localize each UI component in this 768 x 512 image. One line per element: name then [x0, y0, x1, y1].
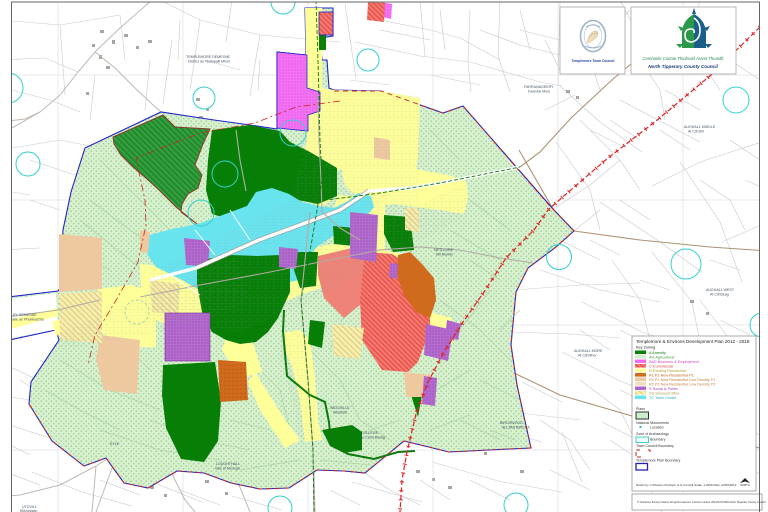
- svg-text:Templemore & Environs Developm: Templemore & Environs Development Plan 2…: [636, 339, 750, 344]
- svg-text:North Tipperary County Council: North Tipperary County Council: [648, 64, 718, 69]
- svg-text:R1 P1 New Residential P1: R1 P1 New Residential P1: [649, 373, 694, 377]
- svg-text:Templemore Plan Boundary: Templemore Plan Boundary: [636, 459, 681, 463]
- svg-text:C Commercial: C Commercial: [649, 364, 673, 368]
- svg-text:A Amenity: A Amenity: [649, 351, 666, 355]
- svg-text:At Cill Mhor: At Cill Mhor: [578, 354, 597, 358]
- svg-text:Kill Munthi: Kill Munthi: [436, 253, 453, 257]
- svg-text:Fawnick More: Fawnick More: [528, 90, 550, 94]
- svg-text:Comhairle Contae Thiobraid Ára: Comhairle Contae Thiobraid Árann Thuaidh: [642, 56, 724, 61]
- svg-text:NETLLORE: NETLLORE: [434, 248, 454, 252]
- svg-text:...RY DEMESNE: ...RY DEMESNE: [10, 313, 37, 317]
- svg-text:FARRANAGEERY: FARRANAGEERY: [524, 85, 554, 89]
- svg-text:Plans: Plans: [636, 407, 645, 411]
- svg-text:TC Town Centre: TC Town Centre: [649, 396, 676, 400]
- svg-text:NORTH: NORTH: [740, 483, 749, 487]
- svg-text:SS Serviced Sites: SS Serviced Sites: [649, 391, 679, 395]
- svg-text:KYLE: KYLE: [110, 442, 120, 446]
- svg-text:National Monuments: National Monuments: [636, 421, 669, 425]
- svg-text:R2 P1 New Residential Low De: R2 P1 New Residential Low Density P1: [649, 378, 715, 382]
- svg-text:R Existing Residential: R Existing Residential: [649, 369, 686, 373]
- svg-text:Vale of Monogh: Vale of Monogh: [215, 467, 240, 471]
- svg-text:Boundary: Boundary: [650, 438, 666, 442]
- svg-text:At Cill still: At Cill still: [688, 130, 704, 134]
- svg-text:Templemore Town Council: Templemore Town Council: [572, 59, 615, 63]
- svg-text:Key Zoning: Key Zoning: [636, 346, 655, 350]
- svg-text:BIRCHWOOD: BIRCHWOOD: [500, 421, 523, 425]
- svg-text:S Social & Public: S Social & Public: [649, 387, 678, 391]
- svg-text:An Choil Bheag: An Choil Bheag: [360, 436, 385, 440]
- svg-text:AUGHALL MIDDLE: AUGHALL MIDDLE: [684, 125, 716, 129]
- svg-text:District an Teampaill Mhoir: District an Teampaill Mhoir: [188, 60, 231, 64]
- svg-text:Baile an Phuilleachta: Baile an Phuilleachta: [10, 318, 44, 322]
- svg-text:Westerfe: Westerfe: [333, 411, 347, 415]
- svg-text:TEMPLEMORE DEMESNE: TEMPLEMORE DEMESNE: [186, 55, 231, 59]
- svg-text:AG Agricultural: AG Agricultural: [649, 355, 674, 359]
- svg-text:B&E Business & Employment: B&E Business & Employment: [649, 360, 700, 364]
- svg-text:LOUGHTHALL: LOUGHTHALL: [216, 462, 240, 466]
- svg-text:© Ordnance Survey Ireland. All: © Ordnance Survey Ireland. All rights re…: [637, 500, 766, 504]
- svg-text:Drawn by: N.Phelan Checked: H: Drawn by: N.Phelan Checked: H.G Consult …: [636, 483, 737, 487]
- svg-text:ALLTAN BIRCHA: ALLTAN BIRCHA: [502, 426, 530, 430]
- svg-text:Zone of Archaeology: Zone of Archaeology: [636, 432, 669, 436]
- svg-text:AUGHALL WEST: AUGHALL WEST: [706, 288, 735, 292]
- svg-text:AUGHALL MORE: AUGHALL MORE: [574, 349, 603, 353]
- svg-text:Location: Location: [650, 426, 664, 430]
- svg-text:R2 P2 New Residential Low De: R2 P2 New Residential Low Density P2: [649, 382, 715, 386]
- svg-text:Town Council Boundary: Town Council Boundary: [636, 444, 674, 448]
- svg-text:At Cill Beag: At Cill Beag: [710, 293, 729, 297]
- svg-text:COLLEGE: COLLEGE: [361, 431, 379, 435]
- svg-text:WIDOVILLE: WIDOVILLE: [330, 406, 350, 410]
